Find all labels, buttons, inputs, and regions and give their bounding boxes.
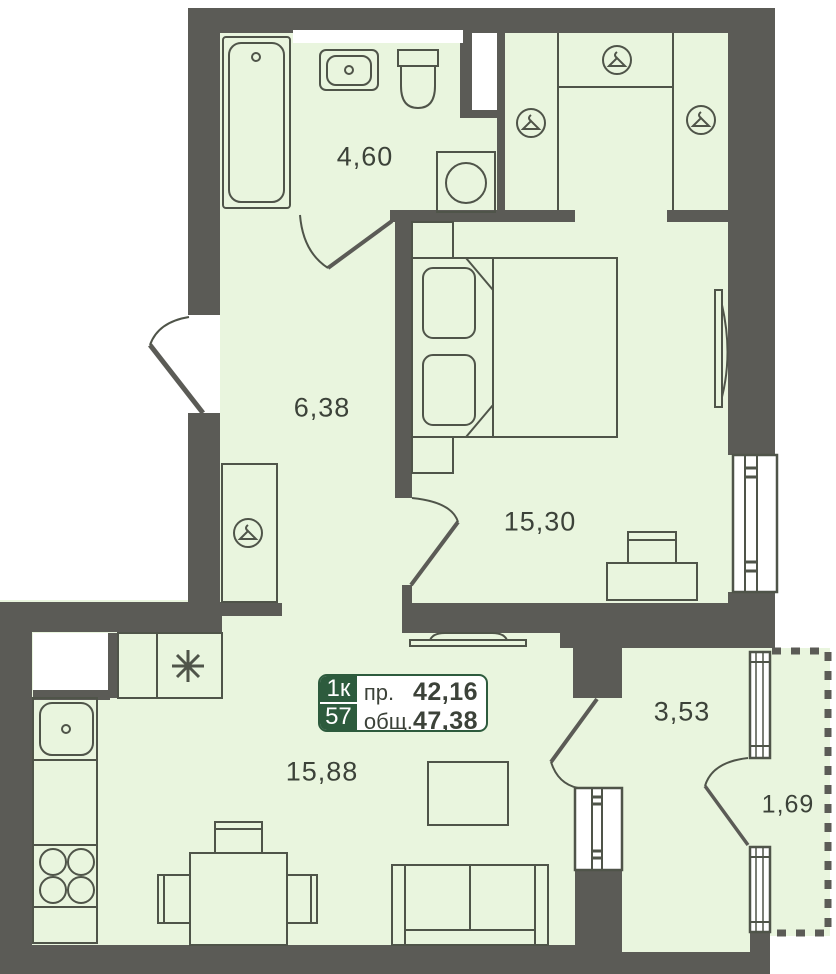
wall-left-mid [188,413,220,633]
floorplan-drawing [0,0,836,974]
wall-bedroom-bottom-right [560,603,775,648]
wall-stub-bedroom-door [402,585,412,605]
wall-hall-bedroom [395,222,412,498]
reduced-area-row: пр. 42,16 [364,678,478,707]
wall-shaft-bottom [460,110,497,118]
floorplan: 4,60 6,38 15,30 15,88 3,53 1,69 1к 57 пр… [0,0,836,974]
badge-left-panel: 1к 57 [320,676,357,730]
wall-under-window [575,870,622,945]
wall-bottom [0,945,622,974]
kitchen-niche [33,633,108,690]
room-label-balcony: 1,69 [762,791,815,820]
total-area-row: общ. 47,38 [364,707,478,732]
sofa [392,865,548,945]
apartment-info-badge: 1к 57 пр. 42,16 общ. 47,38 [318,674,488,732]
desk [607,563,697,600]
bed [412,258,617,437]
vent-shaft [472,33,497,110]
rooms-count: 1к [320,676,357,702]
living-loggia-window [575,788,622,870]
wall-balcony-stub [750,932,770,952]
reduced-area-label: пр. [364,680,394,706]
room-label-bedroom: 15,30 [504,507,577,538]
wall-living-loggia [573,648,622,698]
room-label-loggia: 3,53 [654,697,711,728]
wall-wardrobe-stub [667,210,728,222]
wall-closet-stub [222,603,282,616]
wall-bottom-loggia [622,952,770,974]
room-label-living-kitchen: 15,88 [286,757,359,788]
wall-kitchen-band [0,602,222,632]
balcony-window-lower [750,847,770,932]
wall-left-lower [0,602,32,974]
wall-shaft-right [497,30,505,210]
wall-bedroom-bottom-left [402,603,575,633]
wall-shaft-left [460,30,472,118]
unit-number: 57 [320,704,357,730]
badge-right-panel: пр. 42,16 общ. 47,38 [357,676,486,730]
balcony-window-upper [750,652,770,758]
total-area-label: общ. [364,709,413,733]
wall-right-upper [728,8,775,455]
total-area-value: 47,38 [413,707,478,732]
room-label-bathroom: 4,60 [337,142,394,173]
dining-table [190,853,287,945]
room-label-hallway: 6,38 [294,393,351,424]
bathroom-shelf [293,30,463,43]
floor-areas [0,8,830,974]
wall-left-upper [188,8,220,315]
reduced-area-value: 42,16 [413,678,478,707]
wall-top [188,8,775,33]
bedroom-window [733,455,777,592]
